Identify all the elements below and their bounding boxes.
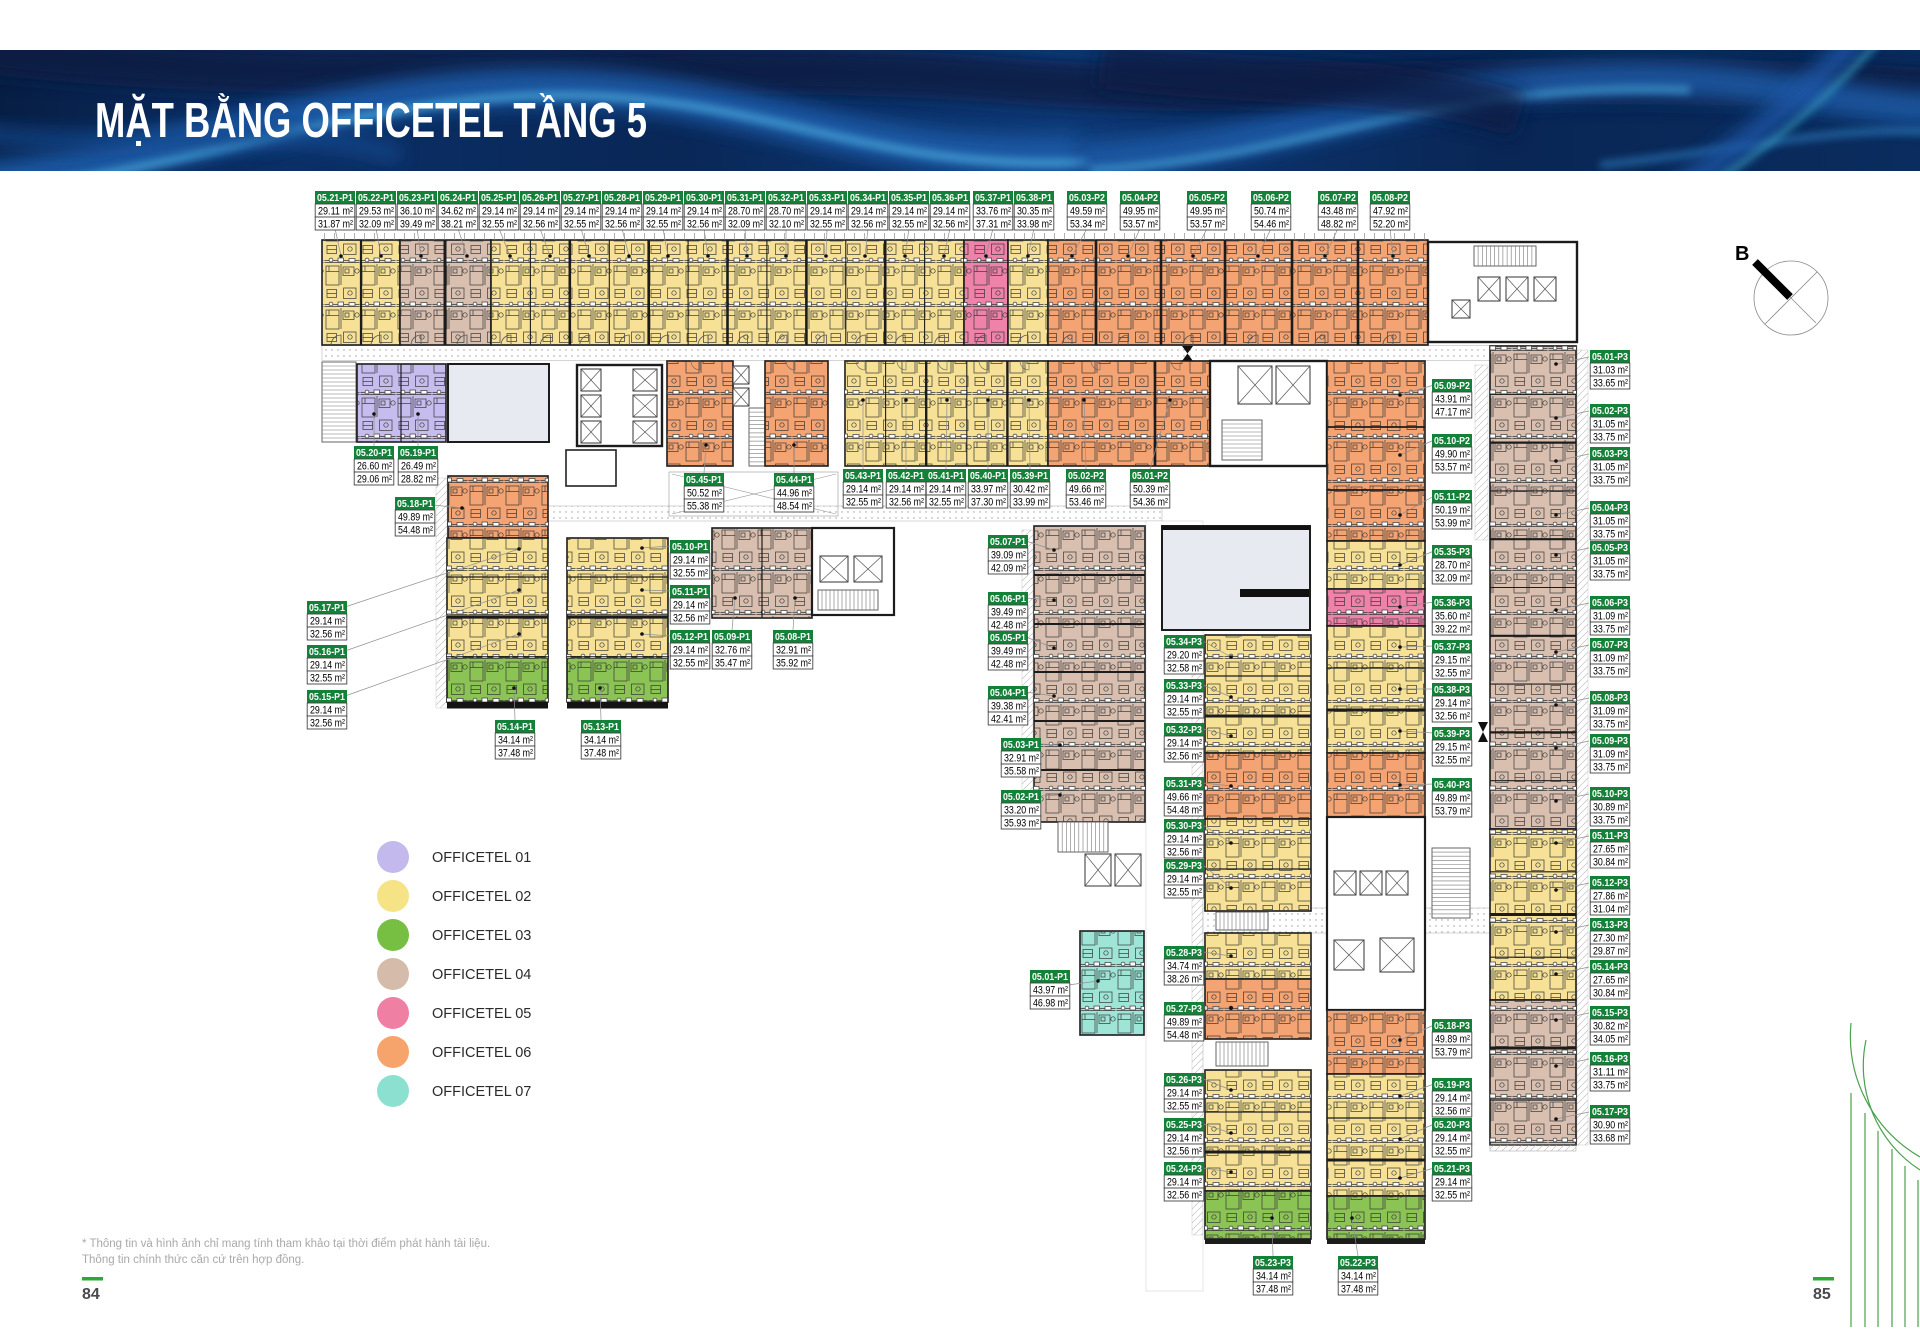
svg-text:05.15-P1: 05.15-P1 (309, 692, 345, 703)
svg-text:OFFICETEL 03: OFFICETEL 03 (432, 928, 531, 944)
svg-text:43.91 m²: 43.91 m² (1435, 394, 1470, 406)
svg-text:05.40-P1: 05.40-P1 (970, 471, 1006, 482)
svg-text:31.09 m²: 31.09 m² (1593, 653, 1628, 665)
svg-text:29.14 m²: 29.14 m² (846, 484, 881, 496)
svg-text:29.20 m²: 29.20 m² (1167, 650, 1202, 662)
svg-text:05.29-P3: 05.29-P3 (1166, 861, 1202, 872)
svg-text:50.39 m²: 50.39 m² (1133, 484, 1168, 496)
svg-text:29.14 m²: 29.14 m² (1167, 1088, 1202, 1100)
svg-text:34.14 m²: 34.14 m² (1341, 1271, 1376, 1283)
svg-text:05.39-P1: 05.39-P1 (1012, 471, 1048, 482)
svg-text:29.53 m²: 29.53 m² (359, 206, 394, 218)
svg-text:37.31 m²: 37.31 m² (976, 219, 1011, 231)
svg-text:32.55 m²: 32.55 m² (310, 673, 345, 685)
svg-text:05.12-P1: 05.12-P1 (672, 632, 708, 643)
svg-text:32.76 m²: 32.76 m² (715, 645, 750, 657)
svg-text:39.22 m²: 39.22 m² (1435, 624, 1470, 636)
svg-text:05.37-P1: 05.37-P1 (975, 193, 1011, 204)
svg-text:32.55 m²: 32.55 m² (1167, 1101, 1202, 1113)
svg-text:05.26-P1: 05.26-P1 (522, 193, 558, 204)
svg-text:05.11-P2: 05.11-P2 (1434, 492, 1470, 503)
svg-text:34.05 m²: 34.05 m² (1593, 1034, 1628, 1046)
svg-text:05.31-P1: 05.31-P1 (727, 193, 763, 204)
svg-text:32.56 m²: 32.56 m² (523, 219, 558, 231)
svg-text:05.44-P1: 05.44-P1 (776, 475, 812, 486)
svg-text:OFFICETEL 01: OFFICETEL 01 (432, 850, 531, 866)
svg-text:33.75 m²: 33.75 m² (1593, 475, 1628, 487)
svg-text:54.48 m²: 54.48 m² (398, 525, 433, 537)
svg-text:05.11-P1: 05.11-P1 (672, 587, 708, 598)
svg-text:05.26-P3: 05.26-P3 (1166, 1075, 1202, 1086)
svg-text:05.15-P3: 05.15-P3 (1592, 1008, 1628, 1019)
svg-text:34.14 m²: 34.14 m² (1256, 1271, 1291, 1283)
svg-text:32.55 m²: 32.55 m² (1435, 1190, 1470, 1202)
svg-text:33.75 m²: 33.75 m² (1593, 719, 1628, 731)
svg-text:32.58 m²: 32.58 m² (1167, 663, 1202, 675)
svg-text:05.34-P3: 05.34-P3 (1166, 637, 1202, 648)
svg-text:34.14 m²: 34.14 m² (584, 735, 619, 747)
svg-text:32.91 m²: 32.91 m² (776, 645, 811, 657)
svg-text:35.60 m²: 35.60 m² (1435, 611, 1470, 623)
svg-text:33.75 m²: 33.75 m² (1593, 666, 1628, 678)
svg-text:05.19-P1: 05.19-P1 (400, 448, 436, 459)
svg-text:05.08-P1: 05.08-P1 (775, 632, 811, 643)
svg-text:32.55 m²: 32.55 m² (1167, 887, 1202, 899)
svg-text:31.05 m²: 31.05 m² (1593, 419, 1628, 431)
svg-text:31.03 m²: 31.03 m² (1593, 365, 1628, 377)
svg-text:05.20-P1: 05.20-P1 (356, 448, 392, 459)
svg-text:31.05 m²: 31.05 m² (1593, 462, 1628, 474)
svg-text:05.09-P1: 05.09-P1 (714, 632, 750, 643)
svg-text:39.09 m²: 39.09 m² (991, 550, 1026, 562)
svg-text:29.14 m²: 29.14 m² (310, 660, 345, 672)
svg-text:26.60 m²: 26.60 m² (357, 461, 392, 473)
svg-text:37.48 m²: 37.48 m² (498, 748, 533, 760)
svg-text:05.14-P3: 05.14-P3 (1592, 962, 1628, 973)
svg-text:29.14 m²: 29.14 m² (673, 555, 708, 567)
svg-text:29.14 m²: 29.14 m² (1435, 698, 1470, 710)
svg-text:05.09-P2: 05.09-P2 (1434, 381, 1470, 392)
svg-text:05.28-P1: 05.28-P1 (604, 193, 640, 204)
svg-text:05.01-P3: 05.01-P3 (1592, 352, 1628, 363)
svg-text:39.49 m²: 39.49 m² (991, 607, 1026, 619)
svg-text:05.21-P1: 05.21-P1 (317, 193, 353, 204)
svg-text:54.46 m²: 54.46 m² (1254, 219, 1289, 231)
svg-text:37.30 m²: 37.30 m² (971, 497, 1006, 509)
svg-text:33.99 m²: 33.99 m² (1013, 497, 1048, 509)
svg-text:05.39-P3: 05.39-P3 (1434, 729, 1470, 740)
svg-text:43.48 m²: 43.48 m² (1321, 206, 1356, 218)
svg-text:05.06-P2: 05.06-P2 (1253, 193, 1289, 204)
svg-text:05.22-P3: 05.22-P3 (1340, 1258, 1376, 1269)
svg-text:32.56 m²: 32.56 m² (1167, 1146, 1202, 1158)
svg-text:29.14 m²: 29.14 m² (1167, 1177, 1202, 1189)
svg-text:05.32-P3: 05.32-P3 (1166, 725, 1202, 736)
svg-text:05.19-P3: 05.19-P3 (1434, 1080, 1470, 1091)
svg-text:05.16-P1: 05.16-P1 (309, 647, 345, 658)
svg-text:54.48 m²: 54.48 m² (1167, 1030, 1202, 1042)
svg-text:29.14 m²: 29.14 m² (929, 484, 964, 496)
svg-text:32.55 m²: 32.55 m² (810, 219, 845, 231)
svg-text:32.56 m²: 32.56 m² (1435, 711, 1470, 723)
svg-text:29.14 m²: 29.14 m² (892, 206, 927, 218)
svg-text:05.05-P1: 05.05-P1 (990, 633, 1026, 644)
svg-text:32.56 m²: 32.56 m² (310, 718, 345, 730)
svg-text:27.65 m²: 27.65 m² (1593, 975, 1628, 987)
svg-text:05.43-P1: 05.43-P1 (845, 471, 881, 482)
svg-text:29.14 m²: 29.14 m² (646, 206, 681, 218)
svg-text:34.14 m²: 34.14 m² (498, 735, 533, 747)
svg-text:05.03-P2: 05.03-P2 (1069, 193, 1105, 204)
svg-text:84: 84 (82, 1286, 100, 1303)
svg-text:33.68 m²: 33.68 m² (1593, 1133, 1628, 1145)
svg-text:29.87 m²: 29.87 m² (1593, 946, 1628, 958)
svg-text:33.76 m²: 33.76 m² (976, 206, 1011, 218)
svg-text:32.56 m²: 32.56 m² (1435, 1106, 1470, 1118)
svg-text:33.97 m²: 33.97 m² (971, 484, 1006, 496)
svg-text:49.59 m²: 49.59 m² (1070, 206, 1105, 218)
svg-text:32.55 m²: 32.55 m² (1435, 755, 1470, 767)
svg-text:48.82 m²: 48.82 m² (1321, 219, 1356, 231)
svg-text:46.98 m²: 46.98 m² (1033, 998, 1068, 1010)
svg-text:05.05-P2: 05.05-P2 (1189, 193, 1225, 204)
svg-text:35.58 m²: 35.58 m² (1004, 766, 1039, 778)
svg-text:05.31-P3: 05.31-P3 (1166, 779, 1202, 790)
svg-text:05.25-P3: 05.25-P3 (1166, 1120, 1202, 1131)
svg-text:05.02-P1: 05.02-P1 (1003, 792, 1039, 803)
svg-text:49.89 m²: 49.89 m² (1435, 793, 1470, 805)
svg-text:32.55 m²: 32.55 m² (1435, 668, 1470, 680)
svg-text:29.14 m²: 29.14 m² (673, 600, 708, 612)
svg-text:38.26 m²: 38.26 m² (1167, 974, 1202, 986)
svg-text:33.75 m²: 33.75 m² (1593, 432, 1628, 444)
svg-text:29.14 m²: 29.14 m² (1167, 1133, 1202, 1145)
svg-text:48.54 m²: 48.54 m² (777, 501, 812, 513)
svg-text:31.09 m²: 31.09 m² (1593, 706, 1628, 718)
svg-text:05.28-P3: 05.28-P3 (1166, 948, 1202, 959)
svg-text:29.14 m²: 29.14 m² (889, 484, 924, 496)
svg-text:29.14 m²: 29.14 m² (1167, 874, 1202, 886)
svg-text:05.29-P1: 05.29-P1 (645, 193, 681, 204)
svg-text:05.40-P3: 05.40-P3 (1434, 780, 1470, 791)
svg-text:Thông tin chính thức căn cứ tr: Thông tin chính thức căn cứ trên hợp đồn… (82, 1254, 304, 1266)
svg-text:05.32-P1: 05.32-P1 (768, 193, 804, 204)
svg-text:29.14 m²: 29.14 m² (1435, 1177, 1470, 1189)
svg-text:39.49 m²: 39.49 m² (991, 646, 1026, 658)
svg-text:29.14 m²: 29.14 m² (310, 616, 345, 628)
svg-text:05.18-P1: 05.18-P1 (397, 499, 433, 510)
svg-text:33.65 m²: 33.65 m² (1593, 378, 1628, 390)
svg-text:05.04-P1: 05.04-P1 (990, 688, 1026, 699)
svg-text:29.14 m²: 29.14 m² (523, 206, 558, 218)
svg-text:33.75 m²: 33.75 m² (1593, 529, 1628, 541)
svg-text:32.56 m²: 32.56 m² (605, 219, 640, 231)
svg-text:31.09 m²: 31.09 m² (1593, 611, 1628, 623)
svg-text:33.75 m²: 33.75 m² (1593, 624, 1628, 636)
svg-text:53.99 m²: 53.99 m² (1435, 518, 1470, 530)
svg-text:05.02-P2: 05.02-P2 (1068, 471, 1104, 482)
svg-text:32.55 m²: 32.55 m² (929, 497, 964, 509)
svg-text:05.08-P2: 05.08-P2 (1372, 193, 1408, 204)
svg-text:32.55 m²: 32.55 m² (892, 219, 927, 231)
svg-text:43.97 m²: 43.97 m² (1033, 985, 1068, 997)
svg-text:50.19 m²: 50.19 m² (1435, 505, 1470, 517)
svg-text:47.92 m²: 47.92 m² (1373, 206, 1408, 218)
svg-text:05.23-P1: 05.23-P1 (399, 193, 435, 204)
svg-text:28.82 m²: 28.82 m² (401, 474, 436, 486)
svg-text:29.14 m²: 29.14 m² (1167, 738, 1202, 750)
svg-text:05.14-P1: 05.14-P1 (497, 722, 533, 733)
svg-text:05.38-P1: 05.38-P1 (1016, 193, 1052, 204)
svg-text:53.34 m²: 53.34 m² (1070, 219, 1105, 231)
svg-text:* Thông tin và hình ảnh chỉ ma: * Thông tin và hình ảnh chỉ mang tính th… (82, 1238, 490, 1250)
svg-text:05.13-P1: 05.13-P1 (583, 722, 619, 733)
svg-text:34.74 m²: 34.74 m² (1167, 961, 1202, 973)
svg-text:29.14 m²: 29.14 m² (687, 206, 722, 218)
svg-text:36.10 m²: 36.10 m² (400, 206, 435, 218)
svg-text:05.35-P1: 05.35-P1 (891, 193, 927, 204)
svg-text:28.70 m²: 28.70 m² (728, 206, 763, 218)
svg-text:32.91 m²: 32.91 m² (1004, 753, 1039, 765)
svg-text:32.55 m²: 32.55 m² (673, 658, 708, 670)
svg-text:05.24-P3: 05.24-P3 (1166, 1164, 1202, 1175)
svg-text:27.30 m²: 27.30 m² (1593, 933, 1628, 945)
svg-text:29.15 m²: 29.15 m² (1435, 742, 1470, 754)
svg-text:05.36-P1: 05.36-P1 (932, 193, 968, 204)
svg-text:29.14 m²: 29.14 m² (1167, 834, 1202, 846)
svg-text:37.48 m²: 37.48 m² (1256, 1284, 1291, 1296)
svg-text:29.14 m²: 29.14 m² (673, 645, 708, 657)
svg-text:33.20 m²: 33.20 m² (1004, 805, 1039, 817)
svg-text:85: 85 (1813, 1286, 1831, 1303)
svg-text:33.75 m²: 33.75 m² (1593, 762, 1628, 774)
svg-text:30.35 m²: 30.35 m² (1017, 206, 1052, 218)
svg-text:37.48 m²: 37.48 m² (1341, 1284, 1376, 1296)
svg-text:50.52 m²: 50.52 m² (687, 488, 722, 500)
svg-text:05.17-P1: 05.17-P1 (309, 603, 345, 614)
svg-text:OFFICETEL 02: OFFICETEL 02 (432, 889, 531, 905)
svg-text:05.24-P1: 05.24-P1 (440, 193, 476, 204)
svg-text:B: B (1735, 243, 1749, 265)
svg-text:05.03-P3: 05.03-P3 (1592, 449, 1628, 460)
svg-text:05.10-P2: 05.10-P2 (1434, 436, 1470, 447)
svg-text:27.86 m²: 27.86 m² (1593, 891, 1628, 903)
svg-text:53.57 m²: 53.57 m² (1190, 219, 1225, 231)
svg-text:32.55 m²: 32.55 m² (1435, 1146, 1470, 1158)
svg-text:49.89 m²: 49.89 m² (1167, 1017, 1202, 1029)
svg-text:49.90 m²: 49.90 m² (1435, 449, 1470, 461)
svg-text:30.42 m²: 30.42 m² (1013, 484, 1048, 496)
svg-text:05.17-P3: 05.17-P3 (1592, 1107, 1628, 1118)
svg-text:05.34-P1: 05.34-P1 (850, 193, 886, 204)
svg-text:32.55 m²: 32.55 m² (1167, 707, 1202, 719)
svg-text:32.09 m²: 32.09 m² (359, 219, 394, 231)
svg-text:05.02-P3: 05.02-P3 (1592, 406, 1628, 417)
svg-text:05.07-P1: 05.07-P1 (990, 537, 1026, 548)
svg-text:29.14 m²: 29.14 m² (1435, 1133, 1470, 1145)
svg-text:05.06-P1: 05.06-P1 (990, 594, 1026, 605)
svg-text:32.55 m²: 32.55 m² (673, 568, 708, 580)
svg-text:05.01-P2: 05.01-P2 (1132, 471, 1168, 482)
svg-text:05.13-P3: 05.13-P3 (1592, 920, 1628, 931)
svg-text:05.08-P3: 05.08-P3 (1592, 693, 1628, 704)
svg-text:35.92 m²: 35.92 m² (776, 658, 811, 670)
svg-text:05.11-P3: 05.11-P3 (1592, 831, 1628, 842)
svg-text:35.93 m²: 35.93 m² (1004, 818, 1039, 830)
svg-text:05.27-P3: 05.27-P3 (1166, 1004, 1202, 1015)
svg-text:30.84 m²: 30.84 m² (1593, 988, 1628, 1000)
svg-text:39.38 m²: 39.38 m² (991, 701, 1026, 713)
svg-text:32.55 m²: 32.55 m² (482, 219, 517, 231)
svg-text:52.20 m²: 52.20 m² (1373, 219, 1408, 231)
svg-text:29.14 m²: 29.14 m² (605, 206, 640, 218)
svg-text:30.82 m²: 30.82 m² (1593, 1021, 1628, 1033)
svg-text:29.14 m²: 29.14 m² (1435, 1093, 1470, 1105)
svg-text:05.41-P1: 05.41-P1 (928, 471, 964, 482)
svg-text:44.96 m²: 44.96 m² (777, 488, 812, 500)
svg-text:05.36-P3: 05.36-P3 (1434, 598, 1470, 609)
svg-text:OFFICETEL 05: OFFICETEL 05 (432, 1006, 531, 1022)
svg-text:42.48 m²: 42.48 m² (991, 659, 1026, 671)
svg-text:32.55 m²: 32.55 m² (846, 497, 881, 509)
svg-text:33.98 m²: 33.98 m² (1017, 219, 1052, 231)
svg-text:05.03-P1: 05.03-P1 (1003, 740, 1039, 751)
svg-text:05.42-P1: 05.42-P1 (888, 471, 924, 482)
svg-text:31.11 m²: 31.11 m² (1593, 1067, 1628, 1079)
svg-text:35.47 m²: 35.47 m² (715, 658, 750, 670)
svg-text:42.48 m²: 42.48 m² (991, 620, 1026, 632)
svg-text:53.79 m²: 53.79 m² (1435, 806, 1470, 818)
svg-text:05.21-P3: 05.21-P3 (1434, 1164, 1470, 1175)
svg-text:05.05-P3: 05.05-P3 (1592, 543, 1628, 554)
svg-text:05.06-P3: 05.06-P3 (1592, 598, 1628, 609)
svg-text:05.10-P3: 05.10-P3 (1592, 789, 1628, 800)
svg-text:05.35-P3: 05.35-P3 (1434, 547, 1470, 558)
svg-text:05.23-P3: 05.23-P3 (1255, 1258, 1291, 1269)
svg-text:39.49 m²: 39.49 m² (400, 219, 435, 231)
svg-text:32.09 m²: 32.09 m² (1435, 573, 1470, 585)
svg-text:32.10 m²: 32.10 m² (769, 219, 804, 231)
svg-text:27.65 m²: 27.65 m² (1593, 844, 1628, 856)
svg-text:05.27-P1: 05.27-P1 (563, 193, 599, 204)
svg-text:30.90 m²: 30.90 m² (1593, 1120, 1628, 1132)
svg-text:32.56 m²: 32.56 m² (687, 219, 722, 231)
svg-text:05.10-P1: 05.10-P1 (672, 542, 708, 553)
svg-text:32.56 m²: 32.56 m² (933, 219, 968, 231)
svg-text:34.62 m²: 34.62 m² (441, 206, 476, 218)
svg-text:53.46 m²: 53.46 m² (1069, 497, 1104, 509)
svg-text:33.75 m²: 33.75 m² (1593, 815, 1628, 827)
svg-text:05.18-P3: 05.18-P3 (1434, 1021, 1470, 1032)
svg-text:05.22-P1: 05.22-P1 (358, 193, 394, 204)
svg-text:49.95 m²: 49.95 m² (1123, 206, 1158, 218)
svg-text:30.84 m²: 30.84 m² (1593, 857, 1628, 869)
svg-text:32.56 m²: 32.56 m² (310, 629, 345, 641)
svg-text:42.09 m²: 42.09 m² (991, 563, 1026, 575)
svg-text:32.56 m²: 32.56 m² (1167, 751, 1202, 763)
svg-text:29.11 m²: 29.11 m² (318, 206, 353, 218)
svg-text:49.66 m²: 49.66 m² (1069, 484, 1104, 496)
svg-text:05.37-P3: 05.37-P3 (1434, 642, 1470, 653)
svg-text:54.36 m²: 54.36 m² (1133, 497, 1168, 509)
svg-text:31.05 m²: 31.05 m² (1593, 516, 1628, 528)
svg-text:05.45-P1: 05.45-P1 (686, 475, 722, 486)
svg-text:28.70 m²: 28.70 m² (1435, 560, 1470, 572)
svg-text:05.01-P1: 05.01-P1 (1032, 972, 1068, 983)
svg-text:55.38 m²: 55.38 m² (687, 501, 722, 513)
svg-text:05.07-P3: 05.07-P3 (1592, 640, 1628, 651)
svg-text:49.66 m²: 49.66 m² (1167, 792, 1202, 804)
svg-text:31.09 m²: 31.09 m² (1593, 749, 1628, 761)
svg-text:OFFICETEL 04: OFFICETEL 04 (432, 967, 531, 983)
svg-text:05.04-P3: 05.04-P3 (1592, 503, 1628, 514)
svg-text:31.05 m²: 31.05 m² (1593, 556, 1628, 568)
svg-text:49.89 m²: 49.89 m² (1435, 1034, 1470, 1046)
svg-text:29.14 m²: 29.14 m² (810, 206, 845, 218)
svg-text:49.95 m²: 49.95 m² (1190, 206, 1225, 218)
svg-text:05.33-P1: 05.33-P1 (809, 193, 845, 204)
svg-text:33.75 m²: 33.75 m² (1593, 1080, 1628, 1092)
svg-text:29.14 m²: 29.14 m² (851, 206, 886, 218)
svg-text:05.25-P1: 05.25-P1 (481, 193, 517, 204)
svg-text:26.49 m²: 26.49 m² (401, 461, 436, 473)
svg-text:32.56 m²: 32.56 m² (889, 497, 924, 509)
svg-text:29.14 m²: 29.14 m² (564, 206, 599, 218)
svg-text:29.15 m²: 29.15 m² (1435, 655, 1470, 667)
svg-text:53.57 m²: 53.57 m² (1123, 219, 1158, 231)
svg-text:50.74 m²: 50.74 m² (1254, 206, 1289, 218)
svg-text:30.89 m²: 30.89 m² (1593, 802, 1628, 814)
svg-text:05.16-P3: 05.16-P3 (1592, 1054, 1628, 1065)
svg-text:29.14 m²: 29.14 m² (482, 206, 517, 218)
svg-text:05.20-P3: 05.20-P3 (1434, 1120, 1470, 1131)
svg-text:28.70 m²: 28.70 m² (769, 206, 804, 218)
svg-text:05.12-P3: 05.12-P3 (1592, 878, 1628, 889)
svg-text:05.09-P3: 05.09-P3 (1592, 736, 1628, 747)
svg-text:29.14 m²: 29.14 m² (310, 705, 345, 717)
svg-text:05.04-P2: 05.04-P2 (1122, 193, 1158, 204)
svg-text:54.48 m²: 54.48 m² (1167, 805, 1202, 817)
svg-text:05.38-P3: 05.38-P3 (1434, 685, 1470, 696)
svg-text:29.06 m²: 29.06 m² (357, 474, 392, 486)
svg-text:MẶT BẰNG OFFICETEL TẦNG 5: MẶT BẰNG OFFICETEL TẦNG 5 (95, 94, 647, 148)
svg-text:32.09 m²: 32.09 m² (728, 219, 763, 231)
svg-text:29.14 m²: 29.14 m² (933, 206, 968, 218)
svg-text:05.30-P1: 05.30-P1 (686, 193, 722, 204)
svg-text:33.75 m²: 33.75 m² (1593, 569, 1628, 581)
svg-text:32.55 m²: 32.55 m² (646, 219, 681, 231)
svg-text:53.79 m²: 53.79 m² (1435, 1047, 1470, 1059)
svg-text:47.17 m²: 47.17 m² (1435, 407, 1470, 419)
svg-text:38.21 m²: 38.21 m² (441, 219, 476, 231)
svg-text:32.56 m²: 32.56 m² (1167, 847, 1202, 859)
svg-text:05.30-P3: 05.30-P3 (1166, 821, 1202, 832)
svg-text:32.55 m²: 32.55 m² (564, 219, 599, 231)
svg-text:49.89 m²: 49.89 m² (398, 512, 433, 524)
svg-text:37.48 m²: 37.48 m² (584, 748, 619, 760)
svg-text:29.14 m²: 29.14 m² (1167, 694, 1202, 706)
svg-text:OFFICETEL 07: OFFICETEL 07 (432, 1084, 531, 1100)
svg-text:42.41 m²: 42.41 m² (991, 714, 1026, 726)
svg-text:31.87 m²: 31.87 m² (318, 219, 353, 231)
svg-text:OFFICETEL 06: OFFICETEL 06 (432, 1045, 531, 1061)
svg-text:31.04 m²: 31.04 m² (1593, 904, 1628, 916)
svg-text:05.07-P2: 05.07-P2 (1320, 193, 1356, 204)
svg-text:32.56 m²: 32.56 m² (851, 219, 886, 231)
svg-text:32.56 m²: 32.56 m² (1167, 1190, 1202, 1202)
svg-text:32.56 m²: 32.56 m² (673, 613, 708, 625)
svg-text:53.57 m²: 53.57 m² (1435, 462, 1470, 474)
